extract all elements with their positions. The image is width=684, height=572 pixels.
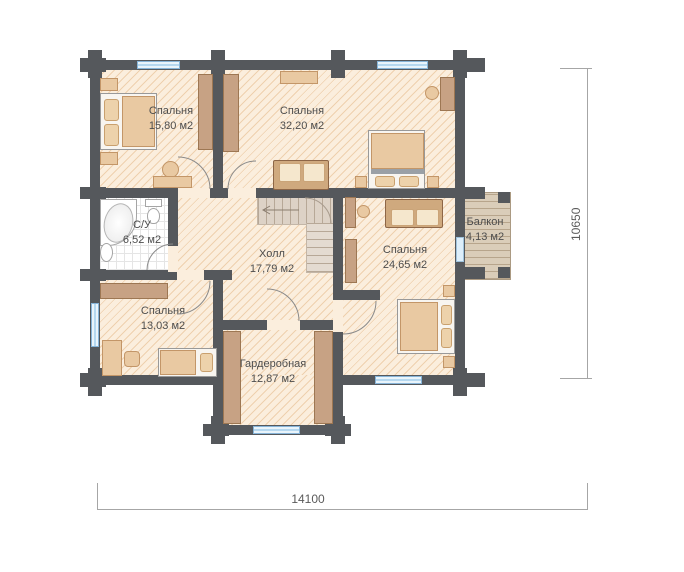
double-bed-icon [397,299,455,354]
dimension-tick [560,378,592,379]
log-end [80,269,106,281]
dimension-line-right [587,68,588,379]
dresser [153,176,192,188]
room-label-bedroom-24: Спальня24,65 м2 [350,243,460,273]
dimension-tick [587,483,588,510]
dimension-line-bottom [97,509,588,510]
door-opening-wardrobe [267,320,300,330]
window-left [91,303,99,347]
desk [440,77,455,111]
room-label-wardrobe: Гардеробная12,87 м2 [218,357,328,387]
door-opening-bathroom [168,246,178,272]
stool-icon [357,205,370,218]
door-opening-bedroom-15 [178,188,210,198]
window-top-left [137,61,180,69]
nightstand [100,152,118,165]
nightstand [355,176,367,188]
door-opening-bedroom-24 [333,300,343,332]
floor-plan: Спальня15,80 м2 Спальня32,20 м2 С/У6,52 … [0,0,684,572]
log-end [459,373,485,387]
room-label-bedroom-15: Спальня15,80 м2 [116,104,226,134]
nightstand [100,78,118,91]
dimension-width-label: 14100 [258,492,358,506]
staircase-upper-flight [257,196,335,225]
dimension-tick [97,483,98,510]
dimension-depth-label: 10650 [569,189,583,259]
window-bottom [375,376,422,384]
log-end [459,267,485,279]
dresser [280,71,318,84]
closet [100,283,168,299]
desk [102,340,122,376]
sofa-icon [385,199,443,228]
room-label-bedroom-32: Спальня32,20 м2 [247,104,357,134]
log-end [80,187,106,199]
closet [345,197,356,228]
log-end [331,50,345,78]
stool-icon [124,351,140,367]
room-label-bathroom: С/У6,52 м2 [97,218,187,248]
window-top-right [377,61,428,69]
room-label-balcony: Балкон4,13 м2 [445,215,525,245]
log-end [459,187,485,199]
nightstand [443,285,455,297]
door-opening-bedroom-32 [228,188,256,198]
balcony-post [498,267,510,278]
dimension-tick [560,68,592,69]
log-end [80,58,106,72]
room-label-bedroom-13: Спальня13,03 м2 [108,304,218,334]
room-label-hall: Холл17,79 м2 [217,247,327,277]
door-leaf-bedroom-24 [343,290,380,300]
log-end [203,424,229,436]
stool-icon [425,86,439,100]
balcony-post [498,192,510,203]
log-end [325,424,351,436]
double-bed-icon [368,130,425,189]
nightstand [443,356,455,368]
nightstand [427,176,439,188]
log-end [459,58,485,72]
window-wardrobe [253,426,300,434]
sofa-icon [273,160,329,190]
single-bed-icon [158,348,217,377]
